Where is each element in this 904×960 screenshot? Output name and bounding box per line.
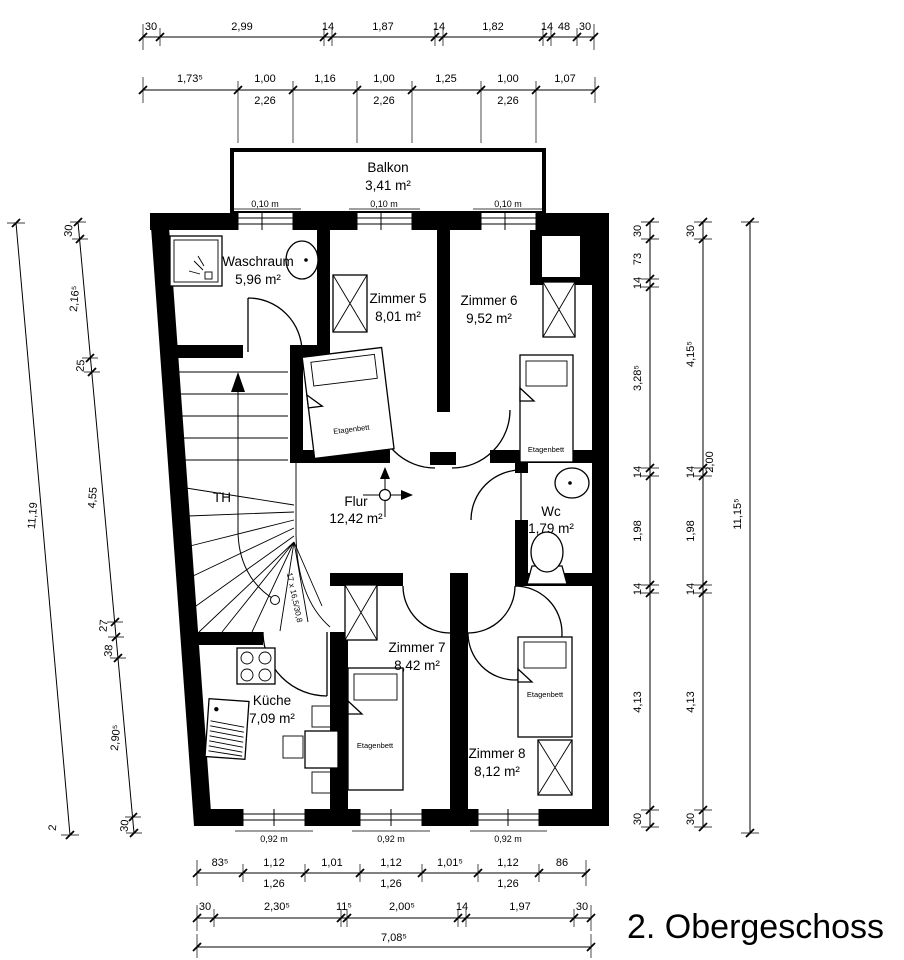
svg-text:2,00: 2,00 (704, 451, 716, 472)
dim-chain-top-1: 30 2,99 14 1,87 14 1,82 14 48 30 (139, 21, 598, 50)
window (243, 809, 305, 826)
svg-text:1,26: 1,26 (380, 878, 401, 890)
svg-text:1,87: 1,87 (372, 21, 393, 33)
svg-text:30: 30 (579, 21, 591, 33)
svg-text:1,73⁵: 1,73⁵ (177, 73, 203, 85)
svg-text:1,01: 1,01 (321, 857, 342, 869)
svg-text:1,98: 1,98 (685, 520, 697, 541)
reference-cross-icon (363, 467, 413, 517)
svg-text:14: 14 (456, 901, 468, 913)
svg-text:14: 14 (632, 583, 644, 595)
stair-riser-note: 17 x 16,5/30,8 (285, 572, 304, 624)
wardrobe (333, 275, 367, 332)
svg-text:Etagenbett: Etagenbett (357, 741, 394, 750)
svg-text:30: 30 (199, 901, 211, 913)
svg-text:2,90⁵: 2,90⁵ (109, 724, 123, 751)
svg-text:1,12: 1,12 (263, 857, 284, 869)
bunk-bed-zimmer6: Etagenbett (520, 355, 573, 462)
window (478, 809, 539, 826)
stove (237, 648, 275, 684)
dim-chain-right-outer: 11,15⁵ (732, 218, 759, 837)
dim-chain-right-middle: 30 4,15⁵ 14 1,98 14 4,13 30 2,00 (685, 218, 716, 831)
room-label: Küche (253, 693, 291, 708)
svg-text:4,13: 4,13 (685, 691, 697, 712)
room-area: 9,52 m² (466, 311, 512, 326)
svg-text:Etagenbett: Etagenbett (527, 690, 564, 699)
svg-text:11,15⁵: 11,15⁵ (732, 498, 744, 529)
bunk-bed-zimmer8: Etagenbett (518, 637, 572, 737)
svg-text:4,55: 4,55 (86, 487, 100, 509)
room-area: 5,96 m² (235, 272, 281, 287)
wc-sink (555, 468, 589, 498)
svg-text:30: 30 (685, 813, 697, 825)
svg-text:1,98: 1,98 (632, 520, 644, 541)
svg-text:25: 25 (75, 359, 88, 372)
svg-text:14: 14 (685, 583, 697, 595)
svg-text:2,26: 2,26 (497, 95, 518, 107)
svg-text:2,99: 2,99 (231, 21, 252, 33)
window-size-label: 0,92 m (260, 834, 288, 844)
dim-chain-right-inner: 30 73 14 3,28⁵ 14 1,98 14 4,13 30 (632, 218, 659, 831)
dim-chain-bottom-1: 83⁵ 1,12 1,01 1,12 1,01⁵ 1,12 86 1,26 1,… (193, 857, 590, 890)
svg-text:14: 14 (433, 21, 445, 33)
svg-text:30: 30 (576, 901, 588, 913)
svg-text:30: 30 (145, 21, 157, 33)
bunk-bed-zimmer5: Etagenbett (302, 347, 394, 458)
bunk-bed-zimmer7: Etagenbett (348, 668, 403, 790)
room-label: Zimmer 6 (461, 293, 518, 308)
svg-text:83⁵: 83⁵ (212, 857, 229, 869)
svg-text:11,19: 11,19 (26, 502, 40, 530)
room-area: 8,42 m² (394, 658, 440, 673)
svg-text:38: 38 (103, 644, 116, 657)
room-area: 1,79 m² (528, 521, 574, 536)
room-label-balkon: Balkon (367, 160, 408, 175)
svg-text:Etagenbett: Etagenbett (528, 445, 565, 454)
svg-text:48: 48 (558, 21, 570, 33)
svg-text:27: 27 (98, 619, 111, 632)
room-area: 8,12 m² (474, 764, 520, 779)
svg-text:14: 14 (632, 466, 644, 478)
svg-text:1,26: 1,26 (497, 878, 518, 890)
svg-text:11⁵: 11⁵ (336, 901, 352, 913)
stair-label: TH (213, 490, 231, 505)
window (481, 213, 536, 230)
svg-text:7,08⁵: 7,08⁵ (381, 932, 407, 944)
room-area: 8,01 m² (375, 309, 421, 324)
svg-text:1,00: 1,00 (497, 73, 518, 85)
floor-plan-page: Balkon 3,41 m² (0, 0, 904, 960)
svg-text:1,01⁵: 1,01⁵ (437, 857, 463, 869)
room-label: Zimmer 5 (370, 291, 427, 306)
svg-text:14: 14 (632, 277, 644, 289)
stair-start-marker (271, 596, 280, 605)
windows-top: 0,10 m 0,10 m 0,10 m (230, 199, 544, 230)
room-label: Zimmer 7 (389, 640, 446, 655)
svg-text:1,97: 1,97 (509, 901, 530, 913)
room-label: Waschraum (222, 254, 294, 269)
room-label: Flur (344, 494, 368, 509)
svg-text:2,26: 2,26 (254, 95, 275, 107)
windows-bottom: 0,92 m 0,92 m 0,92 m (235, 809, 547, 844)
svg-text:73: 73 (632, 253, 644, 265)
wardrobe (538, 740, 572, 795)
room-area: 12,42 m² (329, 511, 383, 526)
svg-text:1,82: 1,82 (482, 21, 503, 33)
svg-text:30: 30 (685, 225, 697, 237)
room-label: Wc (541, 504, 561, 519)
dim-chain-bottom-2: 30 2,30⁵ 11⁵ 2,00⁵ 14 1,97 30 (193, 901, 595, 931)
svg-text:30: 30 (632, 225, 644, 237)
kitchen-sink-unit (205, 699, 249, 760)
window (357, 213, 412, 230)
svg-text:4,13: 4,13 (632, 691, 644, 712)
shower (170, 236, 222, 286)
window (360, 809, 422, 826)
svg-text:1,26: 1,26 (263, 878, 284, 890)
svg-text:3,28⁵: 3,28⁵ (632, 365, 644, 391)
toilet (527, 532, 567, 584)
svg-text:4,15⁵: 4,15⁵ (685, 341, 697, 367)
room-area: 7,09 m² (249, 711, 295, 726)
svg-text:14: 14 (322, 21, 334, 33)
staircase: TH 17 x 16,5/30,8 (178, 372, 330, 632)
window-size-label: 0,92 m (494, 834, 522, 844)
dim-chain-left-inner: 30 2,16⁵ 25 4,55 27 38 2,90⁵ 30 (63, 218, 142, 837)
svg-text:2,26: 2,26 (373, 95, 394, 107)
svg-text:30: 30 (63, 224, 76, 237)
window-size-label: 0,92 m (377, 834, 405, 844)
svg-text:1,12: 1,12 (497, 857, 518, 869)
stair-direction-arrow (231, 372, 245, 392)
wardrobe (345, 585, 377, 640)
dim-chain-top-2: 1,73⁵ 1,00 1,16 1,00 1,25 1,00 1,07 2,26… (139, 73, 599, 143)
window-size-label: 0,10 m (251, 199, 279, 209)
svg-text:14: 14 (685, 466, 697, 478)
svg-text:1,00: 1,00 (254, 73, 275, 85)
svg-text:1,25: 1,25 (435, 73, 456, 85)
stair-walk-line (238, 388, 275, 600)
page-title: 2. Obergeschoss (627, 908, 884, 946)
svg-text:86: 86 (556, 857, 568, 869)
svg-text:1,16: 1,16 (314, 73, 335, 85)
svg-text:2: 2 (47, 824, 59, 831)
window (238, 213, 293, 230)
svg-text:1,12: 1,12 (380, 857, 401, 869)
svg-text:2,00⁵: 2,00⁵ (389, 901, 415, 913)
floor-plan-drawing: Balkon 3,41 m² (0, 0, 904, 960)
svg-text:1,07: 1,07 (554, 73, 575, 85)
window-size-label: 0,10 m (370, 199, 398, 209)
svg-text:2,16⁵: 2,16⁵ (68, 285, 82, 312)
svg-text:30: 30 (632, 813, 644, 825)
window-size-label: 0,10 m (494, 199, 522, 209)
svg-text:30: 30 (119, 819, 132, 832)
svg-text:14: 14 (541, 21, 553, 33)
svg-text:2,30⁵: 2,30⁵ (264, 901, 290, 913)
dim-chain-bottom-3: 7,08⁵ (193, 932, 595, 958)
room-area-balkon: 3,41 m² (365, 178, 411, 193)
room-label: Zimmer 8 (469, 746, 526, 761)
svg-text:1,00: 1,00 (373, 73, 394, 85)
wardrobe (543, 282, 575, 337)
